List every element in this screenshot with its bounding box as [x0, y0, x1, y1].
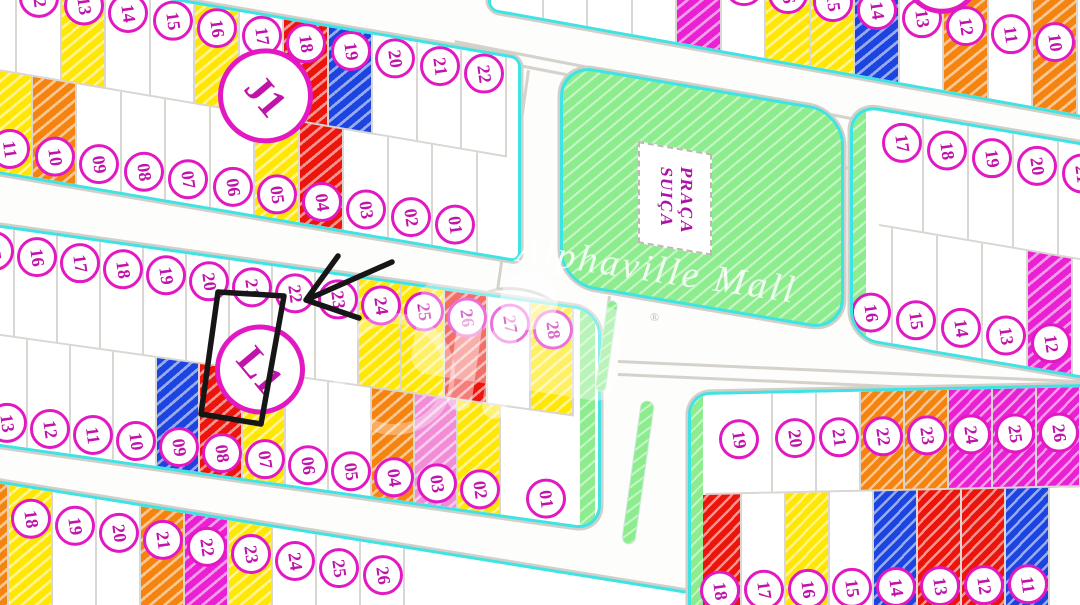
lot-number-badge-l1-12: 12	[30, 409, 70, 449]
block-bottom-right: 1920212223242526271817161514131211	[688, 384, 1080, 605]
lot-number-text: 14	[949, 317, 972, 338]
lot-number-badge-l1-03: 03	[417, 463, 457, 503]
lot-number-text: 22	[283, 283, 306, 304]
lot-number-badge-bottom-right-19: 19	[719, 419, 759, 459]
lot-number-badge-j1-05: 05	[257, 174, 297, 214]
block-label-text: J1	[235, 65, 297, 126]
lot-number-text: 26	[455, 307, 478, 328]
lot-number-badge-bottom-right-15: 15	[832, 568, 872, 605]
lot-number-text: 03	[425, 473, 448, 494]
lot-number-text: 07	[177, 169, 200, 190]
lot-number-badge-l1-10: 10	[116, 421, 156, 461]
lot-number-badge-bottom-left-23: 23	[231, 534, 271, 574]
lot-number-text: 21	[151, 530, 174, 551]
lot-number-text: 17	[752, 579, 775, 600]
block-label-L1: L1	[215, 324, 305, 414]
lot-number-badge-l1-25: 25	[404, 291, 444, 331]
lot-number-text: 19	[980, 148, 1003, 169]
lot-number-text: 18	[935, 140, 958, 161]
lot-number-text: 09	[167, 437, 190, 458]
praca-label-text: PRAÇA SUIÇA	[655, 161, 696, 235]
lot-number-text: 16	[206, 18, 229, 39]
lot-number-text: 14	[866, 0, 889, 20]
lot-number-badge-bottom-right-14: 14	[876, 567, 916, 605]
lot-number-text: 18	[19, 508, 42, 529]
plat-map: PRAÇA SUIÇA Alphaville Mall ® 2221201918…	[0, 0, 1080, 605]
lot-number-text: 12	[1039, 333, 1062, 354]
lot-number-text: 04	[310, 192, 333, 213]
lot-number-badge-bottom-right-11: 11	[1008, 564, 1048, 604]
lot-number-text: 07	[253, 449, 276, 470]
lot-number-badge-l1-02: 02	[460, 469, 500, 509]
lot-number-badge-bottom-left-22: 22	[187, 527, 227, 567]
lot-number-text: 01	[534, 488, 557, 509]
lot-number-badge-bottom-right-12: 12	[964, 565, 1004, 605]
lot-number-text: 08	[210, 443, 233, 464]
lot-number-badge-j1-08: 08	[124, 152, 164, 192]
lot-number-text: 23	[915, 425, 938, 446]
lot-number-badge-l1-21: 21	[232, 267, 272, 307]
lot-number-text: 20	[384, 48, 407, 69]
lot-number-text: 14	[884, 577, 907, 598]
lot-number-text: 18	[111, 259, 134, 280]
lot-number-text: 21	[827, 427, 850, 448]
lot-number-badge-bottom-right-25: 25	[995, 414, 1035, 454]
lot-partial	[0, 478, 9, 605]
lot-number-badge-bottom-left-21: 21	[143, 520, 183, 560]
lot-number-text: 23	[239, 544, 262, 565]
lot-number-text: 24	[369, 295, 392, 316]
block-label-text: L1	[227, 336, 293, 402]
lot-number-text: 18	[708, 580, 731, 601]
lot-number-text: 10	[124, 431, 147, 452]
lot-number-badge-j1-22: 22	[464, 54, 504, 94]
block-j1: 1213141516171819202122111009080706050403…	[0, 0, 521, 263]
lot-number-badge-j1-02: 02	[391, 197, 431, 237]
lot-number-text: 16	[777, 0, 800, 4]
lot-number-text: 11	[999, 24, 1022, 44]
lot-number-text: 10	[1044, 32, 1067, 53]
lot-number-badge-bottom-right-17: 17	[744, 570, 784, 605]
lot-number-badge-j1-15: 15	[153, 1, 193, 41]
lot-number-text: 28	[541, 319, 564, 340]
lot-number-badge-l1-07: 07	[245, 439, 285, 479]
lot-number-badge-l1-22: 22	[275, 273, 315, 313]
lot-number-badge-l1-20: 20	[189, 261, 229, 301]
lot-number-badge-mid-right-12: 12	[1031, 323, 1071, 363]
lot-number-badge-l1-17: 17	[60, 243, 100, 283]
registered-trademark-symbol: ®	[650, 310, 659, 325]
lot-number-badge-bottom-right-18: 18	[700, 571, 740, 605]
lot-h-strip-21	[544, 0, 589, 26]
lot-number-text: 02	[468, 479, 491, 500]
lot-number-badge-l1-27: 27	[490, 304, 530, 344]
lot-number-text: 15	[0, 241, 5, 262]
lot-number-text: 20	[1025, 155, 1048, 176]
lot-number-text: 21	[428, 56, 451, 77]
lot-number-badge-mid-right-13: 13	[986, 315, 1026, 355]
block-l1: 1516171819202122232425262728131211100908…	[0, 219, 601, 532]
lot-number-badge-mid-right-18: 18	[927, 130, 967, 170]
lot-number-text: 09	[88, 154, 111, 175]
block-label-J1: J1	[218, 48, 313, 143]
praca-label-box: PRAÇA SUIÇA	[638, 141, 712, 256]
lot-number-text: 27	[498, 313, 521, 334]
lot-number-text: 25	[1003, 423, 1026, 444]
lot-number-text: 08	[132, 161, 155, 182]
lot-number-badge-mid-right-19: 19	[972, 138, 1012, 178]
lot-number-badge-j1-21: 21	[420, 46, 460, 86]
lot-number-text: 15	[840, 578, 863, 599]
lot-h-strip-22	[499, 0, 544, 18]
praca-label-line2: SUIÇA	[655, 161, 675, 231]
lot-number-badge-j1-04: 04	[302, 182, 342, 222]
lot-number-text: 20	[197, 271, 220, 292]
lot-number-text: 19	[63, 515, 86, 536]
lot-number-text: 13	[0, 412, 18, 433]
praca-label-line1: PRAÇA	[675, 165, 695, 235]
road-median-strip	[621, 400, 655, 546]
lot-number-text: 06	[296, 455, 319, 476]
lot-number-text: 24	[959, 424, 982, 445]
lot-number-text: 03	[355, 199, 378, 220]
lot-number-badge-l1-23: 23	[318, 279, 358, 319]
lot-number-badge-l1-08: 08	[202, 433, 242, 473]
lot-number-text: 20	[107, 522, 130, 543]
lot-number-badge-j1-09: 09	[79, 144, 119, 184]
lot-number-text: 16	[859, 302, 882, 323]
lot-number-text: 22	[473, 63, 496, 84]
lot-number-badge-bottom-right-13: 13	[920, 566, 960, 605]
lot-number-badge-l1-19: 19	[146, 255, 186, 295]
lot-number-badge-j1-20: 20	[375, 38, 415, 78]
lot-number-text: 05	[266, 184, 289, 205]
lot-number-badge-j1-01: 01	[435, 205, 475, 245]
block-mid-right: 17181920211615141312	[850, 103, 1080, 403]
lot-number-badge-bottom-left-25: 25	[319, 548, 359, 588]
lot-number-text: 16	[796, 578, 819, 599]
lot-number-badge-mid-right-17: 17	[882, 123, 922, 163]
lot-number-badge-l1-09: 09	[159, 427, 199, 467]
lot-h-strip-20	[588, 0, 633, 34]
lot-number-text: 21	[240, 277, 263, 298]
lot-number-text: 11	[1016, 574, 1039, 594]
lot-number-text: 26	[1047, 422, 1070, 443]
lot-number-text: 19	[727, 429, 750, 450]
lot-number-text: 24	[283, 551, 306, 572]
lot-number-text: 04	[382, 467, 405, 488]
lot-number-text: 11	[81, 425, 104, 445]
lot-number-text: 14	[117, 3, 140, 24]
lot-number-badge-mid-right-15: 15	[896, 300, 936, 340]
lot-number-badge-bottom-right-26: 26	[1039, 413, 1079, 453]
lot-number-badge-l1-11: 11	[73, 415, 113, 455]
lot-h-strip-19	[633, 0, 678, 42]
lot-number-text: 15	[904, 310, 927, 331]
lot-number-badge-bottom-right-16: 16	[788, 569, 828, 605]
lot-number-badge-bottom-left-18: 18	[11, 499, 51, 539]
block-edge-green-strip	[691, 395, 703, 605]
lot-number-text: 17	[68, 253, 91, 274]
lot-number-text: 25	[412, 301, 435, 322]
lot-number-badge-j1-10: 10	[35, 137, 75, 177]
lot-number-badge-j1-03: 03	[346, 190, 386, 230]
lot-number-badge-l1-26: 26	[447, 297, 487, 337]
lot-number-text: 02	[399, 207, 422, 228]
lot-number-badge-j1-19: 19	[331, 31, 371, 71]
lot-number-badge-h-strip-10: 10	[1035, 22, 1075, 62]
lot-number-text: 10	[43, 146, 66, 167]
lot-number-text: 06	[221, 176, 244, 197]
lot-number-text: 05	[339, 461, 362, 482]
lot-number-badge-l1-06: 06	[288, 445, 328, 485]
lot-number-text: 13	[928, 576, 951, 597]
lot-number-text: 12	[972, 575, 995, 596]
lot-number-badge-l1-01: 01	[526, 479, 566, 519]
lot-number-text: 12	[28, 0, 51, 8]
lot-number-badge-l1-05: 05	[331, 451, 371, 491]
lot-number-text: 19	[339, 41, 362, 62]
block-label-text: H1	[913, 0, 970, 4]
lot-number-text: 18	[295, 33, 318, 54]
lot-number-badge-l1-24: 24	[361, 285, 401, 325]
lot-number-badge-j1-07: 07	[168, 159, 208, 199]
lot-number-text: 22	[195, 537, 218, 558]
lot-number-text: 13	[994, 325, 1017, 346]
lot-number-badge-l1-18: 18	[103, 249, 143, 289]
lot-number-badge-bottom-right-21: 21	[819, 417, 859, 457]
lot-number-text: 23	[326, 289, 349, 310]
lot-number-text: 13	[72, 0, 95, 16]
lot-number-text: 16	[25, 247, 48, 268]
lot-number-text: 15	[161, 10, 184, 31]
lot-number-badge-bottom-right-22: 22	[863, 416, 903, 456]
lot-number-badge-bottom-right-20: 20	[775, 418, 815, 458]
lot-number-badge-bottom-left-19: 19	[55, 506, 95, 546]
lot-number-text: 22	[871, 426, 894, 447]
lot-number-badge-mid-right-20: 20	[1017, 146, 1057, 186]
lot-number-badge-h-strip-11: 11	[991, 14, 1031, 54]
lot-number-badge-j1-16: 16	[197, 8, 237, 48]
lot-number-badge-l1-16: 16	[17, 237, 57, 277]
lot-number-badge-bottom-right-23: 23	[907, 415, 947, 455]
lot-number-text: 11	[0, 139, 22, 159]
lot-number-badge-bottom-right-24: 24	[951, 414, 991, 454]
lot-number-badge-bottom-left-20: 20	[99, 513, 139, 553]
lot-number-text: 15	[821, 0, 844, 12]
lot-number-badge-bottom-left-26: 26	[363, 555, 403, 595]
lot-partial	[1073, 259, 1080, 382]
lot-number-badge-mid-right-16: 16	[851, 293, 891, 333]
lot-number-text: 17	[890, 132, 913, 153]
lot-number-text: 12	[955, 16, 978, 37]
lot-number-text: 12	[38, 419, 61, 440]
lot-number-text: 25	[327, 558, 350, 579]
lot-number-badge-l1-28: 28	[533, 310, 573, 350]
lot-number-badge-l1-04: 04	[374, 457, 414, 497]
lot-number-text: 01	[444, 214, 467, 235]
lot-number-badge-j1-06: 06	[213, 167, 253, 207]
lot-number-text: 26	[371, 565, 394, 586]
praca-square: PRAÇA SUIÇA	[560, 63, 844, 332]
lot-number-text: 20	[783, 428, 806, 449]
lot-partial	[0, 0, 17, 74]
lot-number-badge-bottom-left-24: 24	[275, 541, 315, 581]
lot-number-text: 19	[154, 265, 177, 286]
block-edge-green-strip	[580, 309, 595, 527]
lot-number-text: 17	[250, 25, 273, 46]
lot-h-strip-17	[722, 0, 767, 58]
lot-number-text: 21	[1070, 163, 1080, 184]
lot-h-strip-18	[677, 0, 722, 50]
lot-number-badge-mid-right-14: 14	[941, 308, 981, 348]
